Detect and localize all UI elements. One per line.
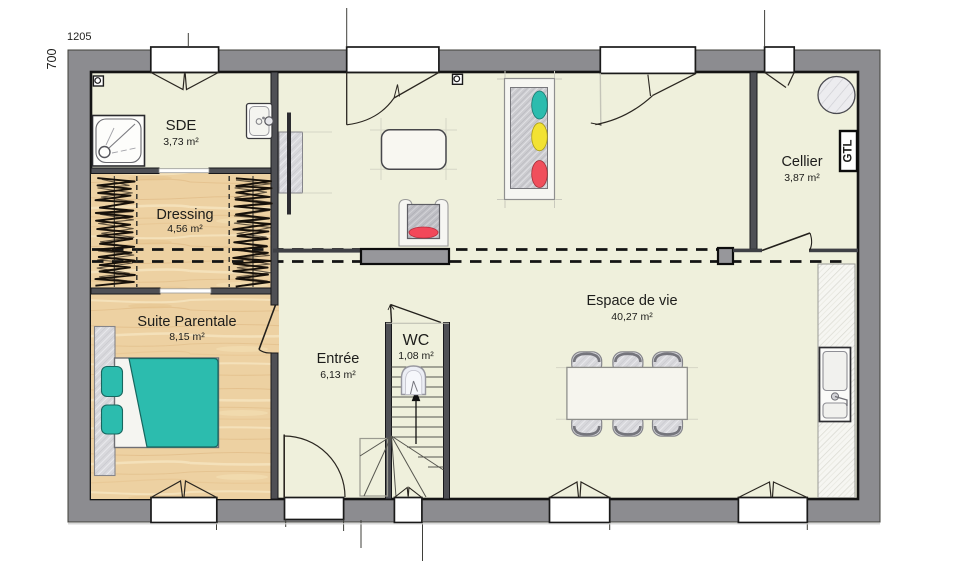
svg-text:Dressing: Dressing xyxy=(156,207,213,223)
svg-text:Espace de vie: Espace de vie xyxy=(586,293,677,309)
svg-text:Entrée: Entrée xyxy=(317,351,360,367)
svg-text:4,56 m²: 4,56 m² xyxy=(167,223,203,235)
svg-text:3,73 m²: 3,73 m² xyxy=(163,136,199,148)
svg-text:1205: 1205 xyxy=(67,31,91,43)
svg-text:GTL: GTL xyxy=(843,140,855,163)
svg-text:1,08 m²: 1,08 m² xyxy=(398,350,434,362)
svg-text:WC: WC xyxy=(403,332,430,349)
svg-text:Suite Parentale: Suite Parentale xyxy=(137,314,236,330)
svg-text:SDE: SDE xyxy=(166,117,197,134)
svg-text:3,87 m²: 3,87 m² xyxy=(784,172,820,184)
svg-text:700: 700 xyxy=(45,49,59,70)
svg-text:40,27 m²: 40,27 m² xyxy=(611,311,653,323)
svg-text:Cellier: Cellier xyxy=(781,154,822,170)
svg-text:8,15 m²: 8,15 m² xyxy=(169,331,205,343)
svg-text:6,13 m²: 6,13 m² xyxy=(320,369,356,381)
